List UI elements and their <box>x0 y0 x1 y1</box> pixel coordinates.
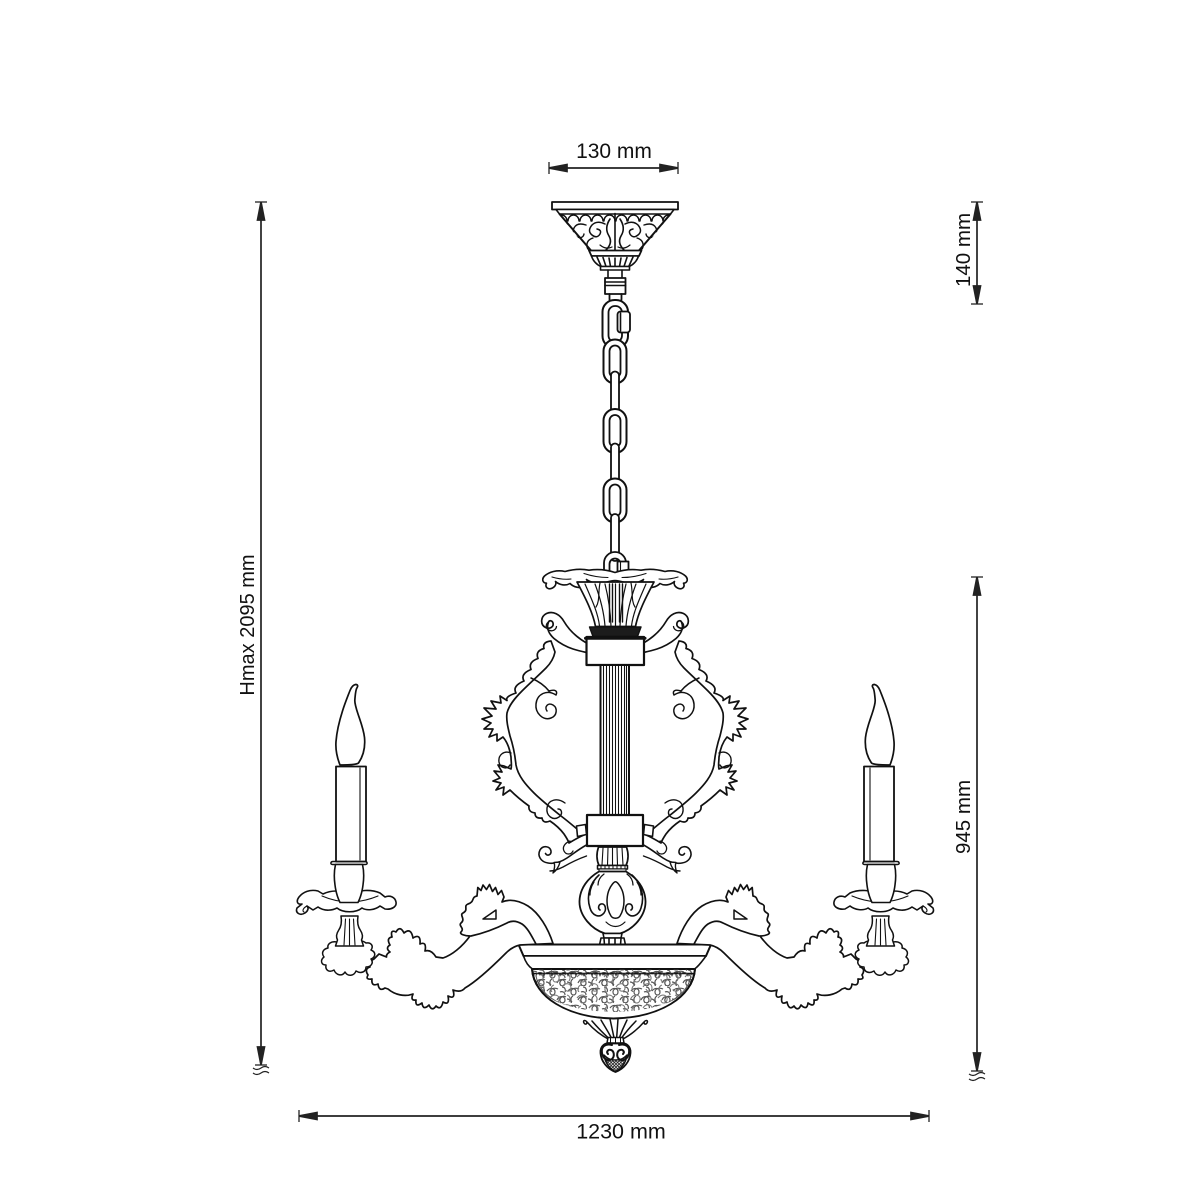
svg-text:945 mm: 945 mm <box>952 780 975 854</box>
svg-text:1230 mm: 1230 mm <box>576 1120 666 1144</box>
svg-text:Hmax 2095 mm: Hmax 2095 mm <box>237 554 259 695</box>
svg-text:140 mm: 140 mm <box>952 213 975 287</box>
svg-text:130 mm: 130 mm <box>576 140 652 163</box>
